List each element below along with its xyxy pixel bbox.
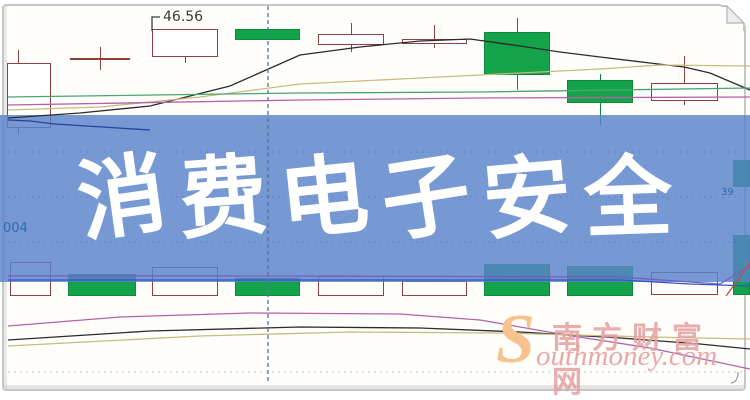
banner-title-char: 电 <box>276 150 373 247</box>
candle-wick <box>351 45 353 52</box>
candle-up <box>318 34 384 45</box>
banner-title-char: 子 <box>375 148 476 249</box>
candle-up <box>402 39 467 44</box>
volume-bar-up <box>402 281 467 296</box>
candle-down <box>484 32 550 75</box>
candle-wick <box>517 18 519 32</box>
candle-wick <box>100 47 102 70</box>
banner-title-char: 安 <box>479 150 574 245</box>
candle-wick <box>517 75 519 90</box>
candle-up <box>152 29 218 57</box>
candle-wick <box>434 25 436 39</box>
banner-title-char: 费 <box>177 151 271 245</box>
candle-up <box>651 83 718 101</box>
candle-wick <box>18 50 20 63</box>
candle-wick <box>684 101 686 105</box>
candle-wick <box>185 57 187 63</box>
candle-wick <box>434 44 436 48</box>
banner-title: 消费电子安全 <box>0 122 750 274</box>
candle-down <box>567 80 633 103</box>
price-annotation: 46.56 <box>163 9 203 25</box>
candle-wick <box>351 23 353 34</box>
banner-title-char: 全 <box>582 152 673 243</box>
stock-chart-card: 46.56 004 39 消费电子安全 S 南方财富网 outhmoney.co… <box>0 0 750 400</box>
candle-wick <box>684 56 686 83</box>
candle-down <box>235 29 300 40</box>
banner-title-char: 消 <box>73 148 172 247</box>
